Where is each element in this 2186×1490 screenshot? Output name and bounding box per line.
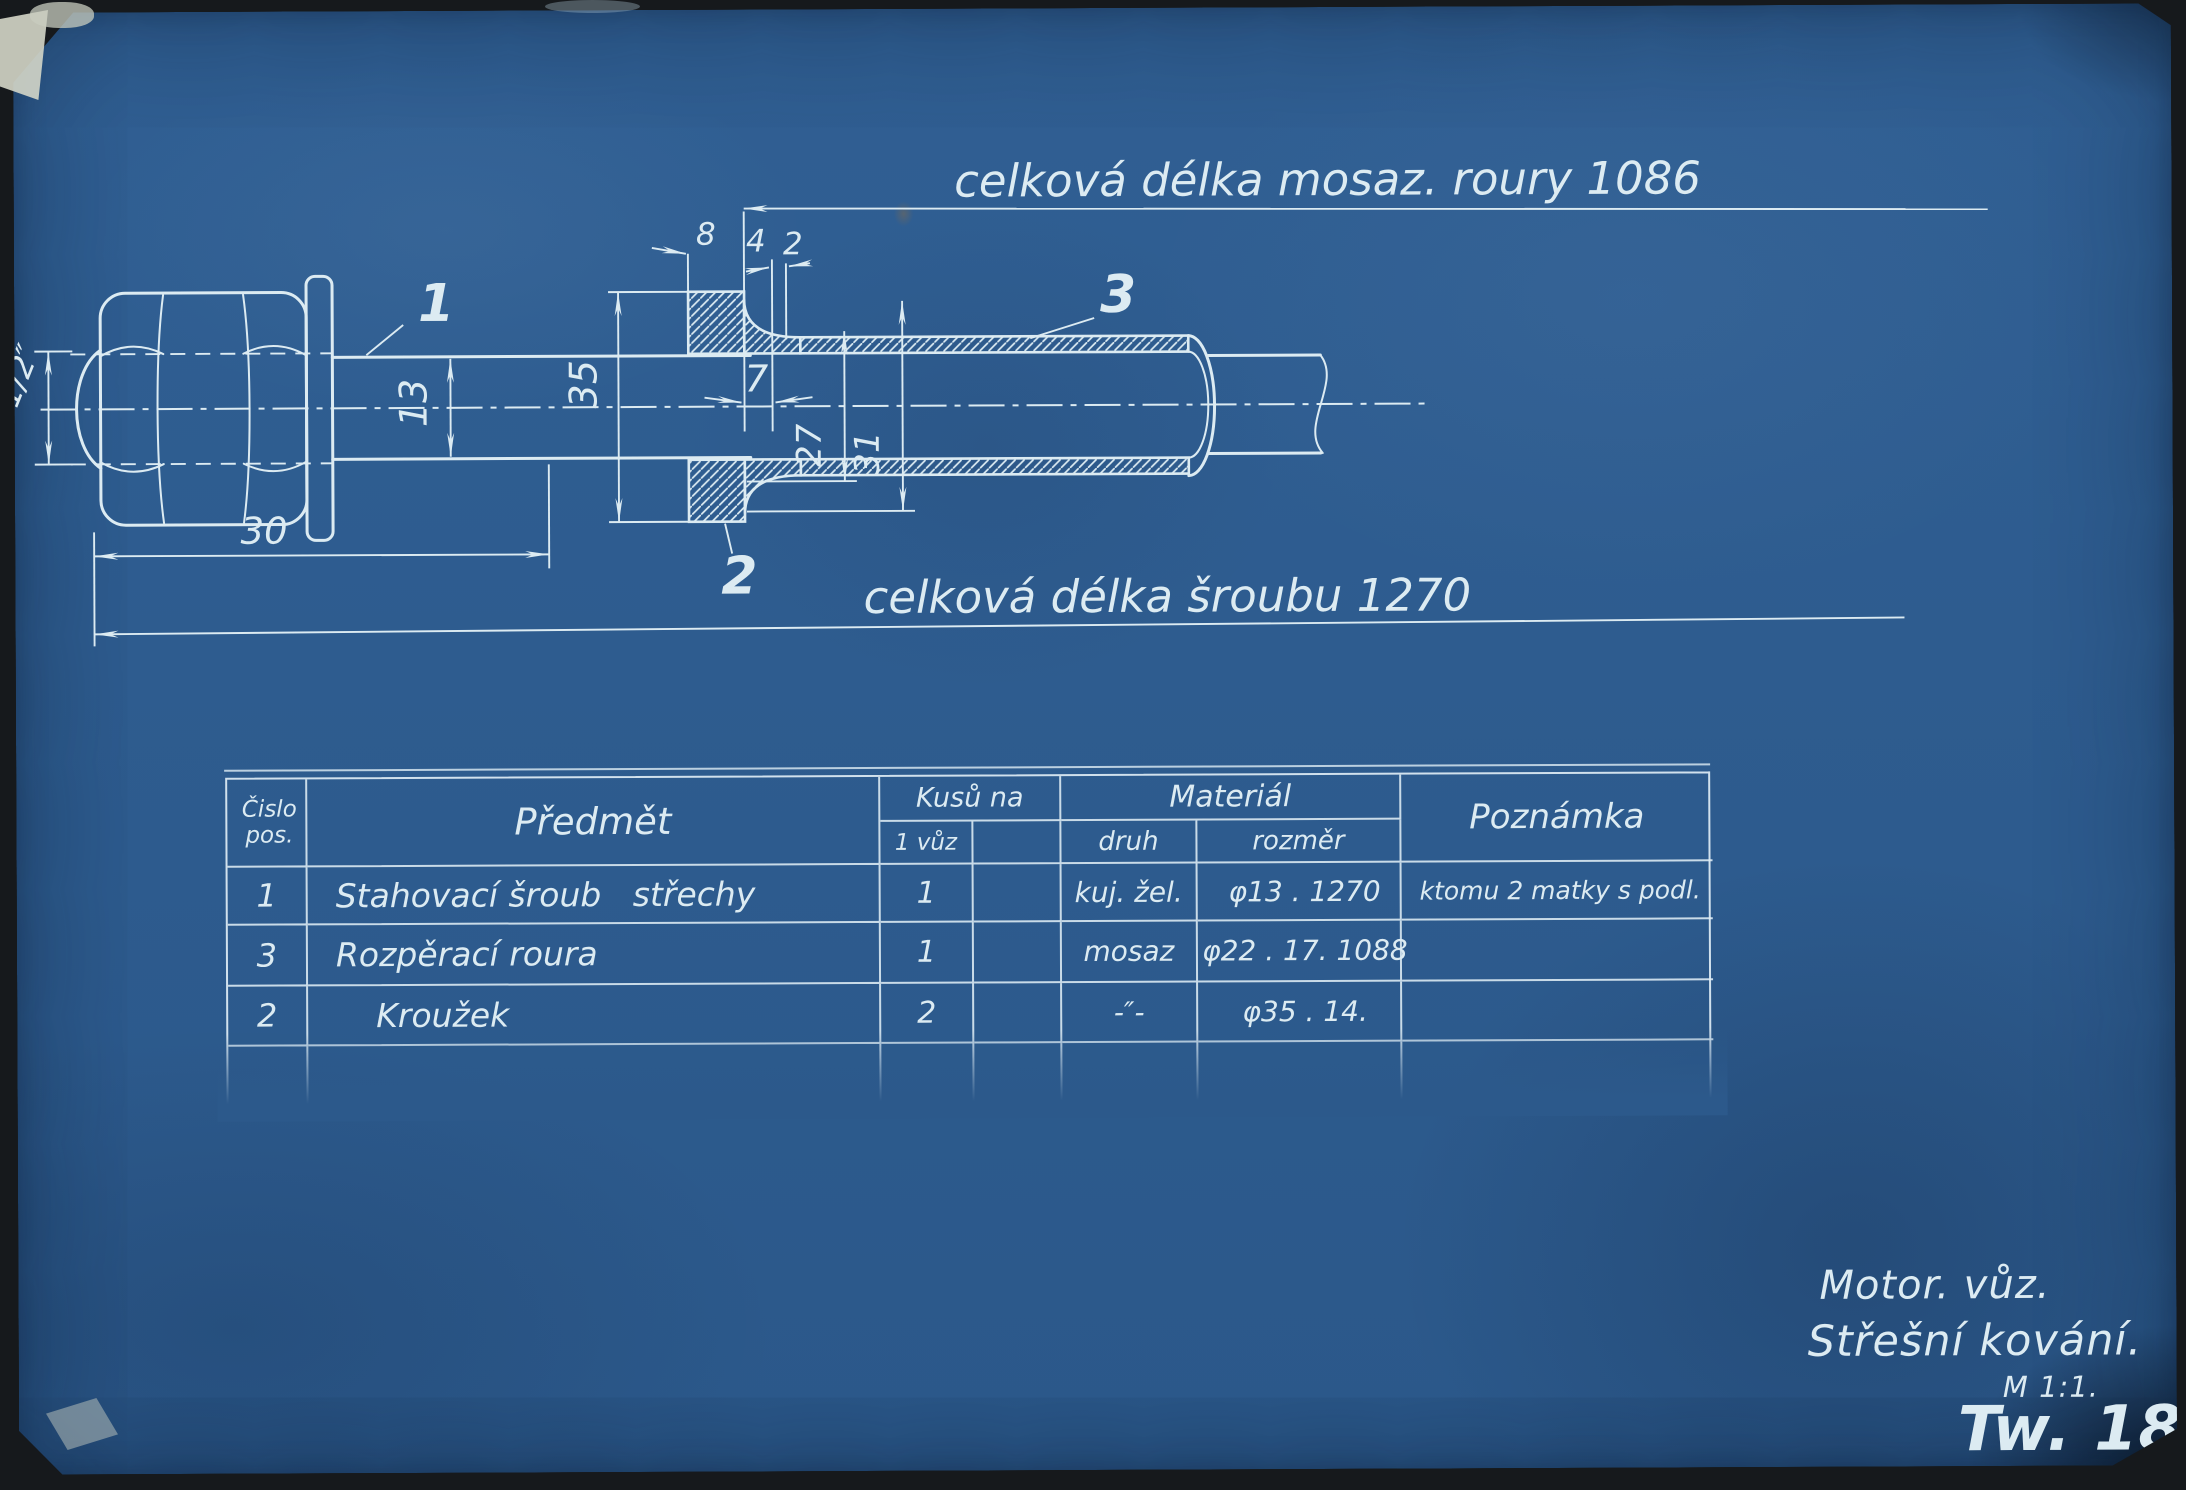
- col-header-material-size: rozměr: [1197, 820, 1401, 864]
- col-header-pos: Čislo pos.: [227, 779, 307, 867]
- col-header-pos-line2: pos.: [245, 822, 293, 849]
- part-label-ring: 2: [721, 523, 758, 606]
- title-line2: Střešní kování.: [1808, 1315, 2143, 1366]
- blueprint-paper: celková délka mosaz. roury 1086 celková …: [13, 3, 2177, 1474]
- dim-shaft-dia: 13: [391, 359, 450, 457]
- dim-seven: 7: [704, 353, 812, 431]
- part-label-screw-text: 1: [418, 274, 454, 334]
- row2-qty2: [974, 922, 1062, 983]
- part-label-screw: 1: [366, 274, 455, 355]
- dim-tube-length: celková délka mosaz. roury 1086: [743, 150, 1988, 291]
- col-header-qty-blank: [973, 821, 1061, 864]
- dim-4-text: 4: [746, 223, 766, 259]
- drawing-number: Tw. 183: [1958, 1391, 2186, 1465]
- dim-screw-length: celková délka šroubu 1270: [94, 524, 1904, 646]
- dim-screw-length-text: celková délka šroubu 1270: [863, 568, 1471, 624]
- dim-flare-od-text: 31: [848, 431, 888, 474]
- row2-item: Rozpěrací roura: [308, 923, 881, 986]
- table-fade-out: [217, 1027, 1727, 1122]
- dim-flare-id-text: 27: [790, 423, 830, 467]
- dim-seven-text: 7: [745, 357, 769, 400]
- row1-size: φ13 . 1270: [1198, 863, 1402, 922]
- col-header-pos-line1: Čislo: [242, 796, 297, 823]
- row1-qty: 1: [881, 865, 974, 923]
- dim-nut-width: 30: [94, 464, 549, 570]
- row2-qty: 1: [881, 923, 974, 984]
- row2-note: [1402, 919, 1713, 981]
- dim-tube-length-text: celková délka mosaz. roury 1086: [954, 151, 1701, 207]
- dim-thread: 1/2″: [0, 339, 73, 465]
- title-line1: Motor. vůz.: [1819, 1262, 2050, 1309]
- row2-size: φ22 . 17. 1088: [1198, 921, 1402, 983]
- part-label-tube: 3: [1030, 265, 1137, 338]
- assembly-drawing: celková délka mosaz. roury 1086 celková …: [0, 0, 2186, 725]
- col-header-qty-group: Kusů na: [880, 776, 1061, 822]
- centerline: [41, 404, 1427, 410]
- row1-kind: kuj. žel.: [1062, 864, 1198, 923]
- col-header-item: Předmět: [307, 777, 880, 867]
- dim-8-text: 8: [696, 217, 716, 253]
- row1-item: Stahovací šroub střechy: [308, 865, 881, 925]
- blueprint-photo: celková délka mosaz. roury 1086 celková …: [0, 0, 2186, 1490]
- dim-ring-od-text: 35: [561, 360, 605, 409]
- dim-2-text: 2: [783, 226, 803, 262]
- dim-shaft-dia-text: 13: [391, 379, 435, 428]
- col-header-note: Poznámka: [1401, 773, 1712, 862]
- col-header-material-group: Materiál: [1061, 775, 1401, 821]
- part-label-tube-text: 3: [1100, 265, 1136, 325]
- dim-thread-text: 1/2″: [0, 339, 48, 412]
- row1-pos: 1: [228, 867, 308, 925]
- torn-edge-top-left-2: [30, 2, 94, 28]
- col-header-qty-per-car: 1 vůz: [880, 822, 973, 865]
- row1-qty2: [974, 864, 1062, 922]
- col-header-material-kind: druh: [1061, 821, 1197, 865]
- dim-nut-width-text: 30: [240, 510, 287, 553]
- torn-edge-top-middle: [545, 0, 640, 13]
- row1-note: ktomu 2 matky s podl.: [1402, 861, 1713, 920]
- row2-pos: 3: [228, 925, 308, 986]
- row2-kind: mosaz: [1062, 922, 1198, 984]
- part-label-ring-text: 2: [721, 546, 757, 606]
